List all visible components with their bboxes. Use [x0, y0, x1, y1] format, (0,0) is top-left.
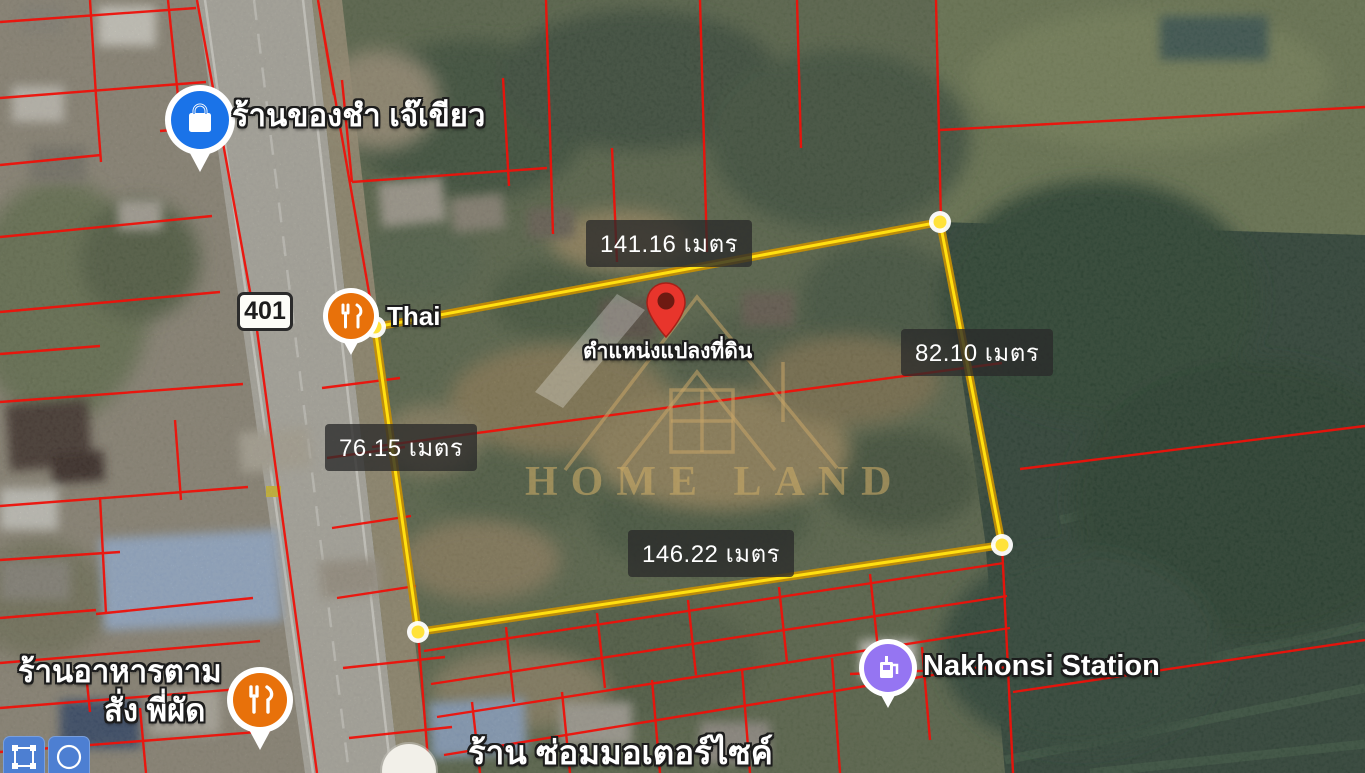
- grocery-shop-pin-icon[interactable]: [164, 82, 236, 174]
- food-stall-label-line1[interactable]: ร้านอาหารตาม: [18, 656, 222, 689]
- thai-restaurant-pin-icon[interactable]: [322, 287, 380, 357]
- grocery-shop-label[interactable]: ร้านของชำ เจ๊เขียว: [232, 100, 485, 133]
- station-pin-icon[interactable]: [858, 638, 918, 710]
- food-stall-label-line2[interactable]: สั่ง พี่ผัด: [104, 695, 205, 728]
- route-401-shield: 401: [237, 292, 293, 331]
- motorcycle-repair-label[interactable]: ร้าน ซ่อมมอเตอร์ไซค์: [468, 736, 773, 771]
- measurement-top: 141.16 เมตร: [586, 220, 752, 267]
- food-stall-pin-icon[interactable]: [226, 666, 294, 752]
- map-canvas[interactable]: HOME LAND 141.16 เมตร 82.10 เมตร 76.15 เ…: [0, 0, 1365, 773]
- circle-draw-icon: [54, 742, 84, 772]
- draw-circle-button[interactable]: [48, 736, 90, 773]
- measurement-right: 82.10 เมตร: [901, 329, 1053, 376]
- measurement-bottom: 146.22 เมตร: [628, 530, 794, 577]
- draw-rectangle-button[interactable]: [3, 736, 45, 773]
- rectangle-draw-icon: [9, 742, 39, 772]
- plot-location-pin-icon: [644, 281, 688, 339]
- thai-restaurant-label[interactable]: Thai: [387, 303, 440, 330]
- measurement-left: 76.15 เมตร: [325, 424, 477, 471]
- plot-location-label: ตำแหน่งแปลงที่ดิน: [583, 341, 752, 363]
- station-label[interactable]: Nakhonsi Station: [923, 651, 1160, 681]
